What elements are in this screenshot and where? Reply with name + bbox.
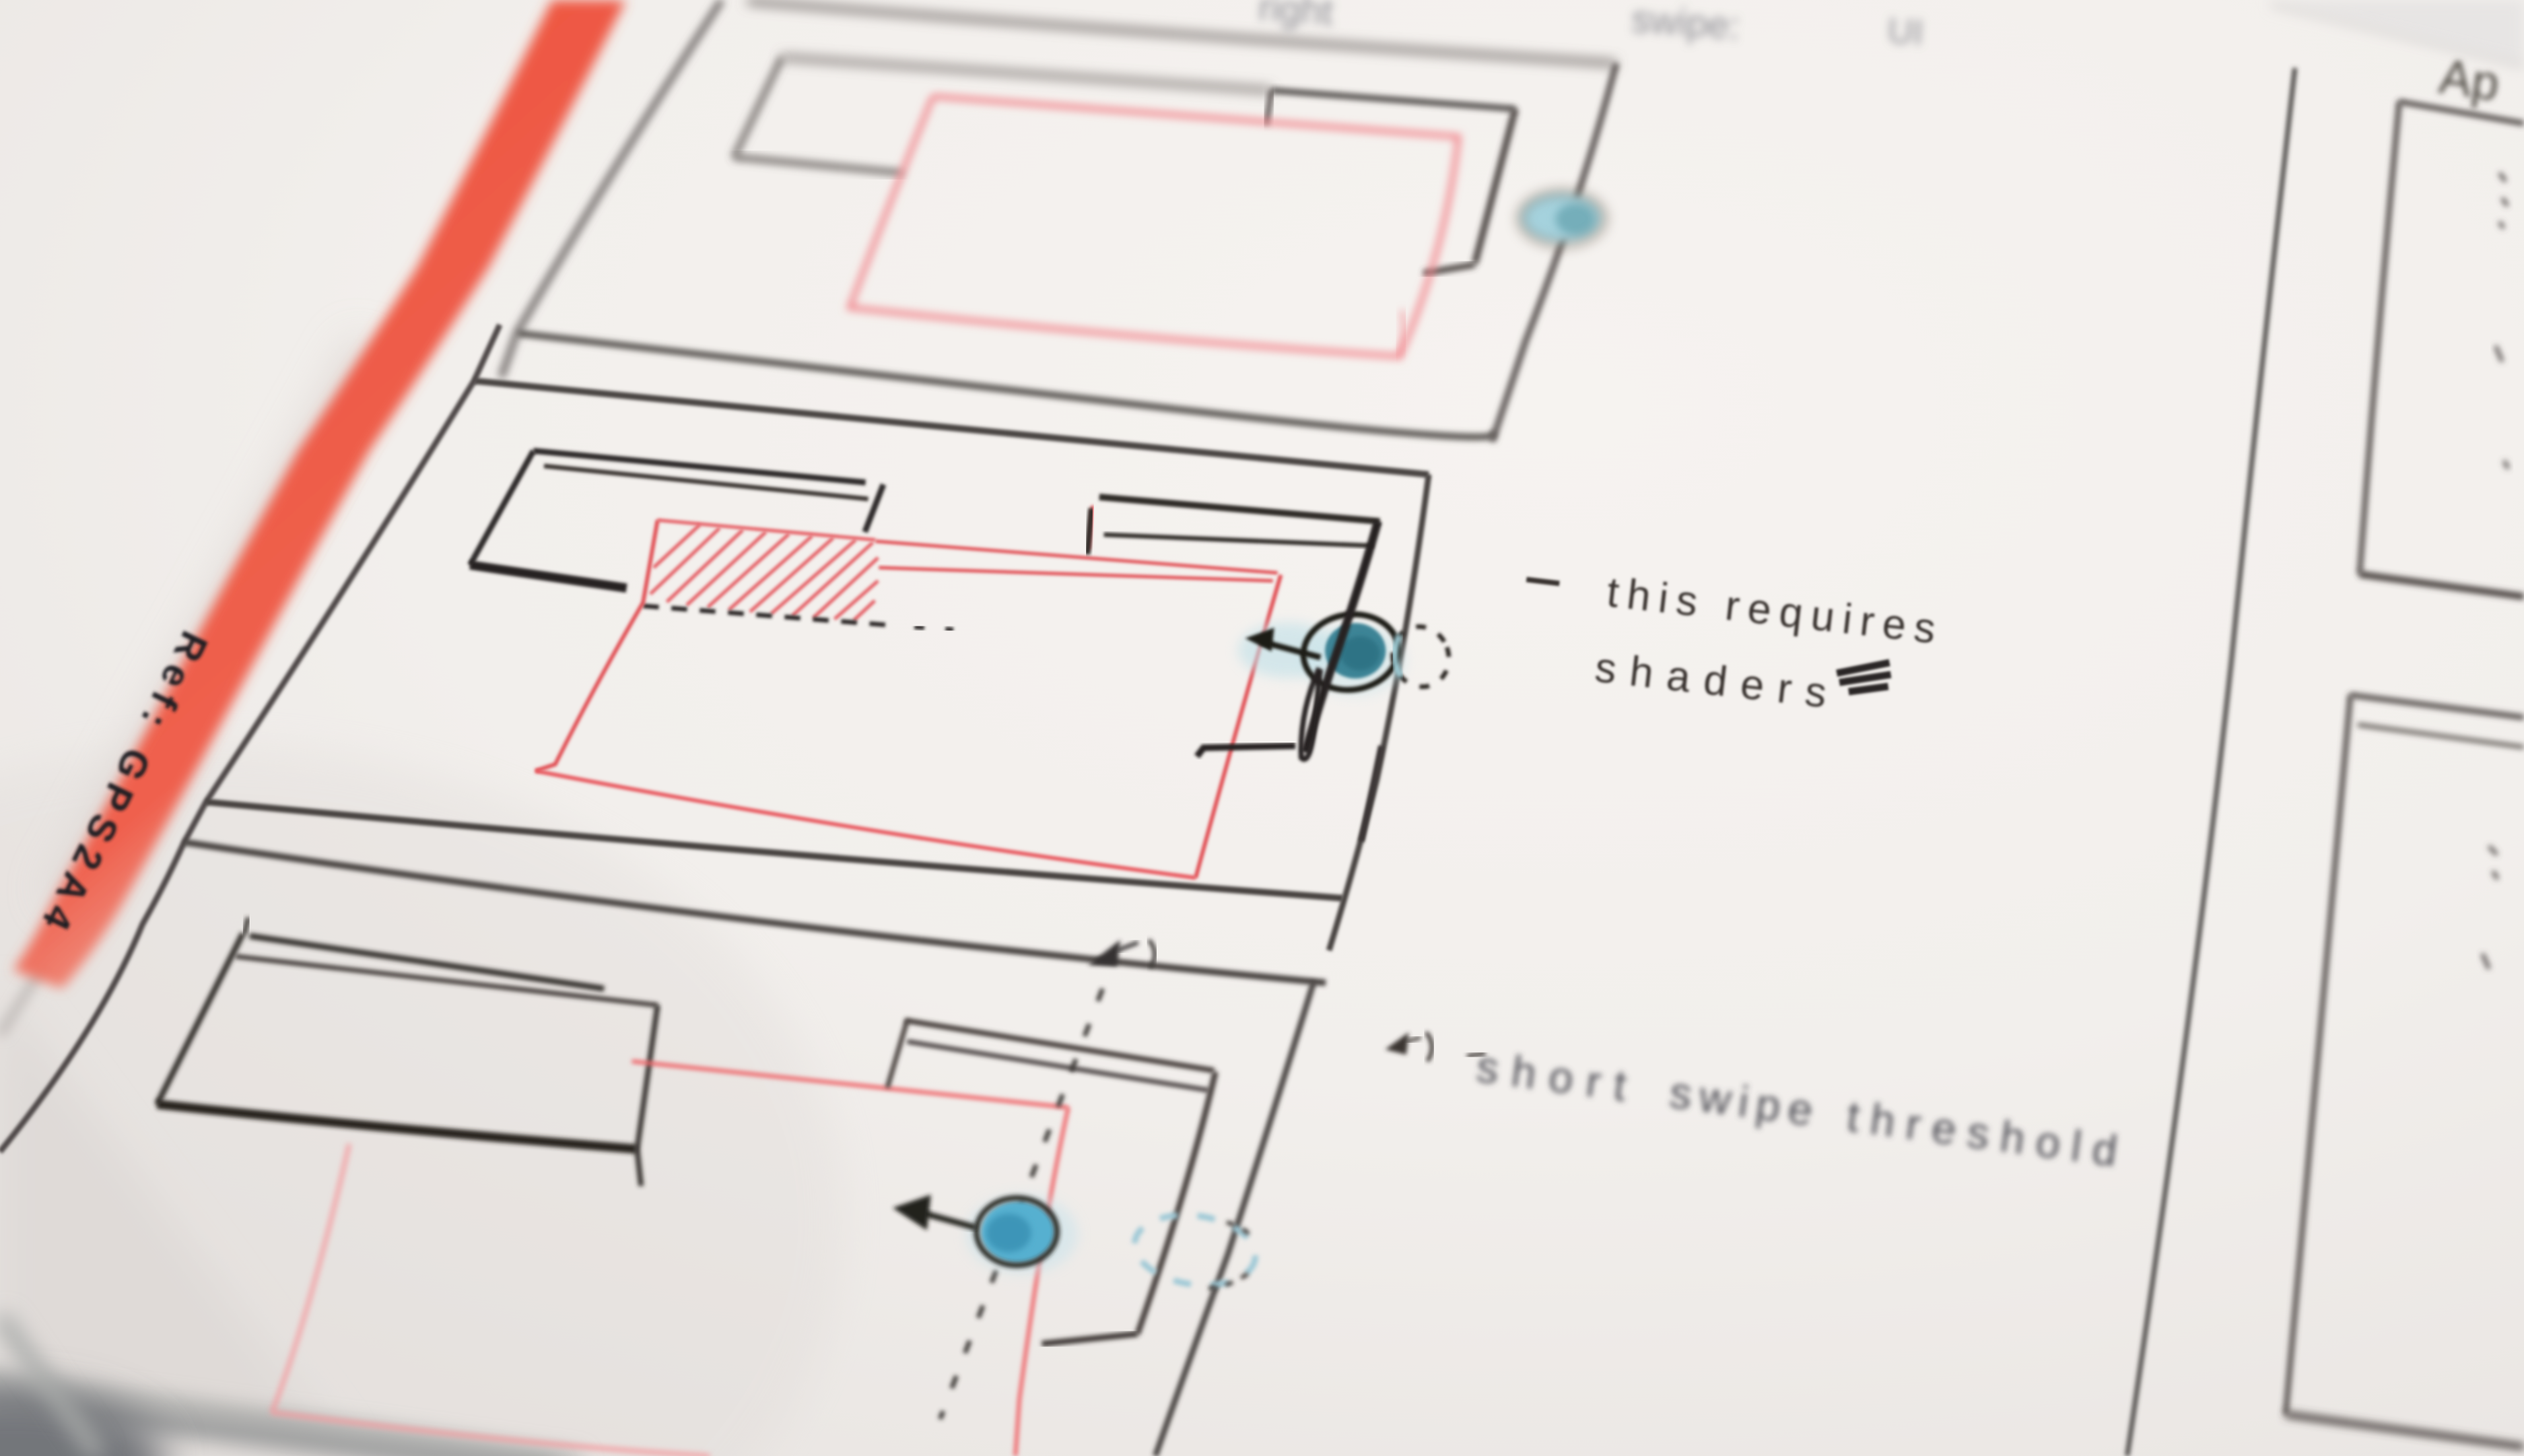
svg-text:swipe:: swipe:	[1630, 0, 1742, 48]
svg-text:right: right	[1257, 0, 1334, 34]
svg-text:UI: UI	[1886, 11, 1925, 53]
svg-text:Ap: Ap	[2436, 49, 2503, 112]
